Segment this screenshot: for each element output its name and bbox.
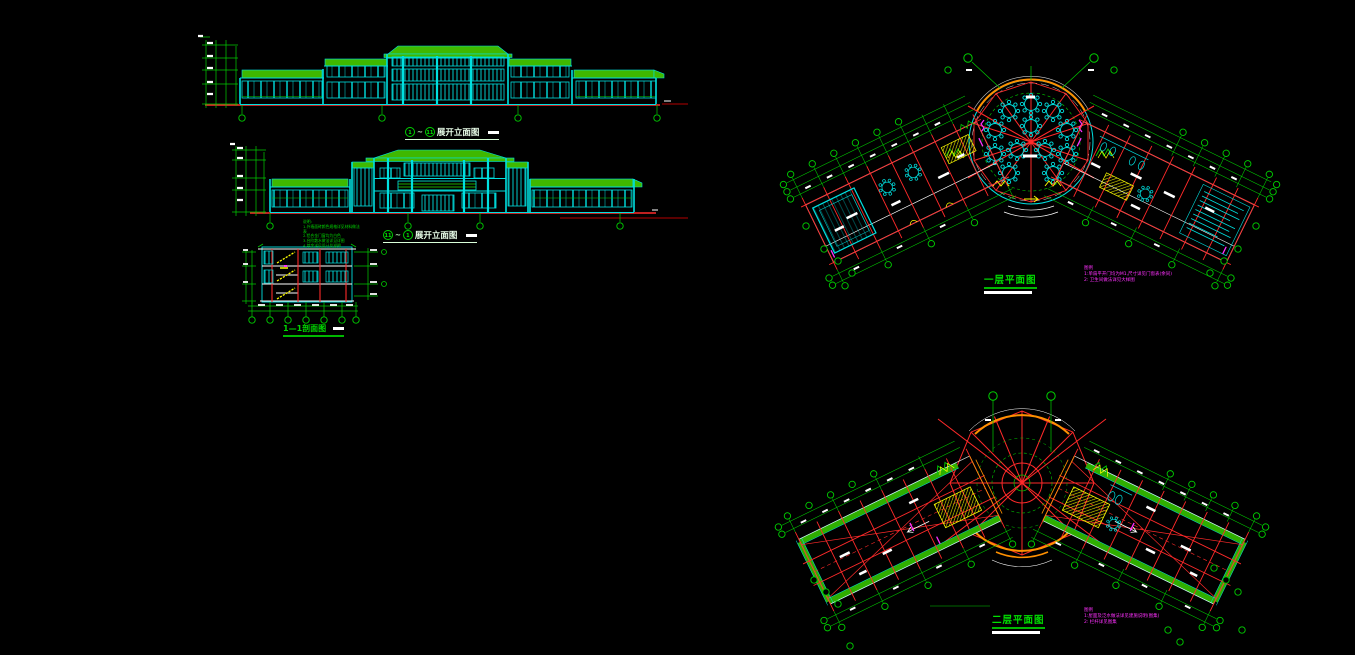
elevation-b-title-text: 展开立面图 bbox=[415, 229, 458, 241]
plan2-right-wing bbox=[1026, 428, 1273, 638]
plan-first-title: 一层平面图 bbox=[984, 272, 1037, 294]
plan-first-title-text: 一层平面图 bbox=[984, 275, 1037, 286]
first-floor-plan-drawing[interactable] bbox=[777, 54, 1284, 295]
second-floor-plan-drawing[interactable] bbox=[771, 392, 1272, 649]
pool bbox=[813, 188, 876, 253]
elevation-a-drawing[interactable] bbox=[198, 36, 688, 121]
dim-lines bbox=[1043, 93, 1274, 285]
plan-second-legend: 图例 1:屋面及泛水做法详见建施说明(图集) 2: 栏杆详见图集 bbox=[1084, 608, 1174, 625]
elevation-a-title-text: 展开立面图 bbox=[437, 126, 480, 138]
section-windows bbox=[264, 251, 348, 283]
grid-drops bbox=[242, 105, 657, 114]
general-notes: 说明: 1.外墙面砖颜色规格详见材料做法表 2.铝合金门窗均为白色 3.台阶散水… bbox=[303, 220, 363, 249]
axis-bubble-start: 11 bbox=[383, 230, 393, 240]
axis-bubble-end: 11 bbox=[425, 127, 435, 137]
title-underline bbox=[984, 287, 1037, 289]
wall-grid-red bbox=[798, 112, 1013, 272]
section-drawing[interactable] bbox=[242, 244, 387, 323]
elevation-b-drawing[interactable] bbox=[230, 144, 688, 229]
axis-separator: ~ bbox=[395, 231, 401, 239]
legend-item: 1:单扇平开门均为M1,尺寸详见门窗表(余同) bbox=[1084, 272, 1174, 278]
note-line: 4.其余详见设计总说明 bbox=[303, 244, 363, 249]
scale-bar bbox=[466, 234, 477, 237]
stair bbox=[934, 487, 981, 528]
detail-bubble bbox=[382, 282, 387, 287]
elevation-b-title: 11 ~ 1 展开立面图 bbox=[383, 229, 477, 243]
title-scale-bar bbox=[992, 631, 1040, 634]
section-title-text: 1—1剖面图 bbox=[283, 323, 326, 334]
scale-bar bbox=[488, 131, 499, 134]
cad-canvas[interactable]: 1 ~ 11 展开立面图 11 ~ 1 展开立面图 说明: 1.外墙面砖颜色规格… bbox=[0, 0, 1355, 655]
axis-bubble-start: 1 bbox=[405, 127, 415, 137]
dim-stack bbox=[200, 37, 238, 108]
entry-steps bbox=[992, 560, 1052, 567]
window-rows bbox=[242, 57, 656, 100]
plan1-left-wing bbox=[777, 86, 1022, 295]
plan-second-title: 二层平面图 bbox=[992, 612, 1045, 634]
dim-text-blobs bbox=[230, 144, 243, 200]
detail-bubble bbox=[382, 250, 387, 255]
level-blobs bbox=[370, 250, 377, 294]
axis-bubbles bbox=[239, 115, 660, 121]
title-scale-bar bbox=[984, 291, 1032, 294]
hub bbox=[1029, 140, 1034, 145]
legend-item: 2: 栏杆详见图集 bbox=[1084, 620, 1174, 626]
stair bbox=[1099, 173, 1133, 201]
top-bubbles bbox=[989, 392, 1055, 400]
title-underline bbox=[992, 627, 1045, 629]
top-bubbles bbox=[964, 54, 1098, 62]
planter-zigzags bbox=[993, 181, 1061, 186]
section-title: 1—1剖面图 bbox=[283, 323, 344, 337]
left-dim-stack bbox=[242, 250, 256, 304]
axis-separator: ~ bbox=[417, 128, 423, 136]
right-dim-stack bbox=[354, 248, 378, 300]
axis-bubble-end: 1 bbox=[403, 230, 413, 240]
plan-second-title-text: 二层平面图 bbox=[992, 615, 1045, 626]
legend-item: 2: 卫生间做法详见大样图 bbox=[1084, 278, 1174, 284]
entry-steps bbox=[1004, 206, 1058, 217]
stair bbox=[941, 134, 976, 163]
elevation-a-title: 1 ~ 11 展开立面图 bbox=[405, 126, 499, 140]
dim-stack bbox=[232, 146, 266, 216]
plan-first-legend: 图例 1:单扇平开门均为M1,尺寸详见门窗表(余同) 2: 卫生间做法详见大样图 bbox=[1084, 266, 1174, 283]
drawings-svg bbox=[0, 0, 1355, 655]
scale-bar bbox=[333, 327, 344, 330]
